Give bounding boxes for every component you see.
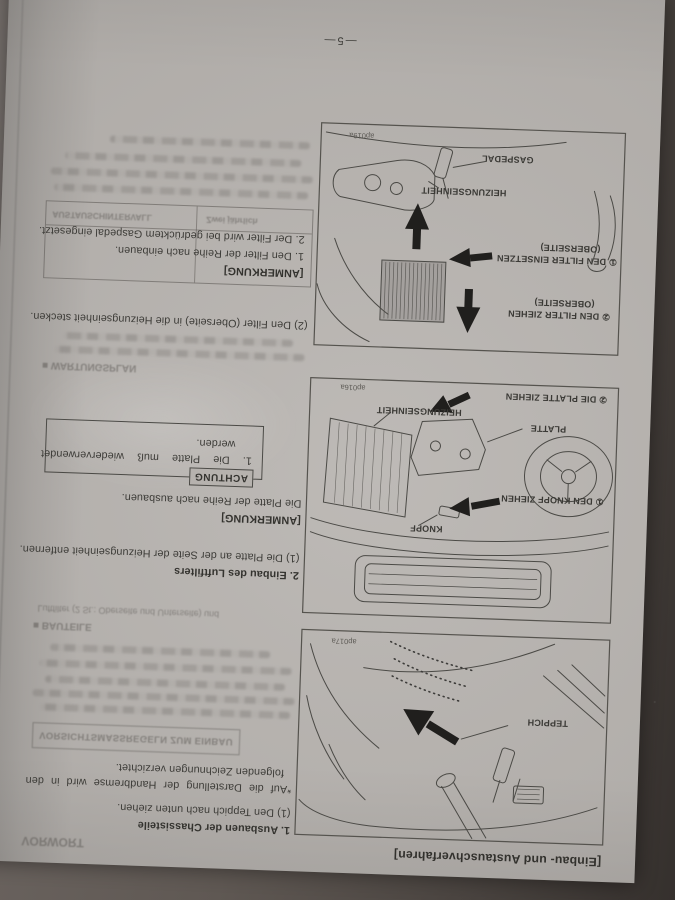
platte-label: PLATTE (530, 423, 566, 434)
bleed-luftfilter-line: Luftfilter (2 St.: Oberseite und Unterse… (37, 603, 297, 622)
figure-filter-code: ap019a (348, 131, 374, 141)
bleed-table-header-twice: Zwei jährlich (206, 215, 306, 228)
teppich-leader-line (461, 724, 507, 741)
bleed-smudge (110, 135, 310, 149)
gaspedal-label: GASPEDAL (481, 153, 533, 165)
page-number: —5— (299, 33, 379, 48)
bleed-vorwort: VORWORT (21, 834, 141, 852)
bleed-smudge (40, 703, 290, 719)
bleed-smudge (51, 167, 313, 183)
heizung-label: HEIZUNGSEINHEIT (376, 405, 462, 418)
bleed-smudge (45, 675, 285, 690)
knob-arrow-head (449, 496, 471, 516)
bleed-caution-box: VORSICHTSMASSREGELN ZUM EINBAU (32, 722, 241, 755)
photo-of-manual-page: { "page": { "number": "—5—", "heading": … (0, 0, 675, 900)
down-arrow-shaft (416, 227, 417, 249)
figure-carpet: TEPPICH ap017a (294, 628, 611, 846)
figure-filter-art: ② DEN FILTER ZIEHEN (OBERSEITE) ① DEN FI… (313, 122, 627, 357)
achtung-text: 1. Die Platte muß wiederverwendet werden… (41, 428, 253, 468)
figure-plate-art: KNOPF ① DEN KNOPF ZIEHEN PLATTE HEIZUNGS… (302, 377, 620, 625)
bleed-smudge (40, 659, 292, 675)
carpet-arrow-shaft (427, 724, 458, 742)
section1-note: *Auf die Darstellung der Handbremse wird… (25, 755, 292, 797)
filter-pull-label2: (OBERSEITE) (534, 297, 595, 309)
bleed-smudge (63, 332, 293, 347)
teppich-label: TEPPICH (527, 717, 568, 728)
bleed-smudge (54, 184, 308, 200)
section2-step2: (2) Den Filter (Oberseite) in die Heizun… (20, 307, 308, 333)
figure-carpet-art: TEPPICH ap017a (294, 628, 611, 846)
figure-plate-code: ap016a (339, 383, 365, 393)
bleed-smudge (65, 152, 301, 167)
knopf-label: KNOPF (410, 523, 443, 534)
figure-carpet-code: ap017a (331, 636, 357, 646)
insert-arrow-shaft (470, 255, 492, 259)
filter-pull-label: ② DEN FILTER ZIEHEN (508, 308, 610, 322)
figure-filter: ② DEN FILTER ZIEHEN (OBERSEITE) ① DEN FI… (313, 122, 627, 357)
pull-arrow-head (455, 307, 480, 334)
paper-sheet: [Einbau- und Austauschverfahren] (0, 0, 665, 883)
achtung-box: ACHTUNG 1. Die Platte muß wiederverwende… (44, 418, 264, 480)
procedure-heading: [Einbau- und Austauschverfahren] (279, 844, 601, 869)
platte-step-label: ② DIE PLATTE ZIEHEN (505, 391, 607, 405)
insert-arrow-head (449, 247, 472, 267)
knob-arrow-shaft (471, 500, 499, 507)
knopf-step-label: ① DEN KNOPF ZIEHEN (501, 493, 604, 507)
filter-insert-label2: (OBERSEITE) (540, 243, 601, 255)
figure-plate: KNOPF ① DEN KNOPF ZIEHEN PLATTE HEIZUNGS… (302, 377, 620, 625)
bleed-smudge (55, 346, 305, 362)
pull-arrow-shaft (468, 289, 469, 309)
bleed-wartungsplan: ■ WARTUNGSPLAN (42, 359, 152, 374)
plate-arrow-shaft (449, 394, 469, 405)
bleed-smudge (33, 689, 295, 705)
bleed-bauteile: ■ BAUTEILE (33, 619, 143, 634)
achtung-tab-label: ACHTUNG (189, 467, 254, 487)
filter-insert-label: ① DEN FILTER EINSETZEN (497, 253, 618, 267)
bleed-smudge (50, 644, 270, 659)
